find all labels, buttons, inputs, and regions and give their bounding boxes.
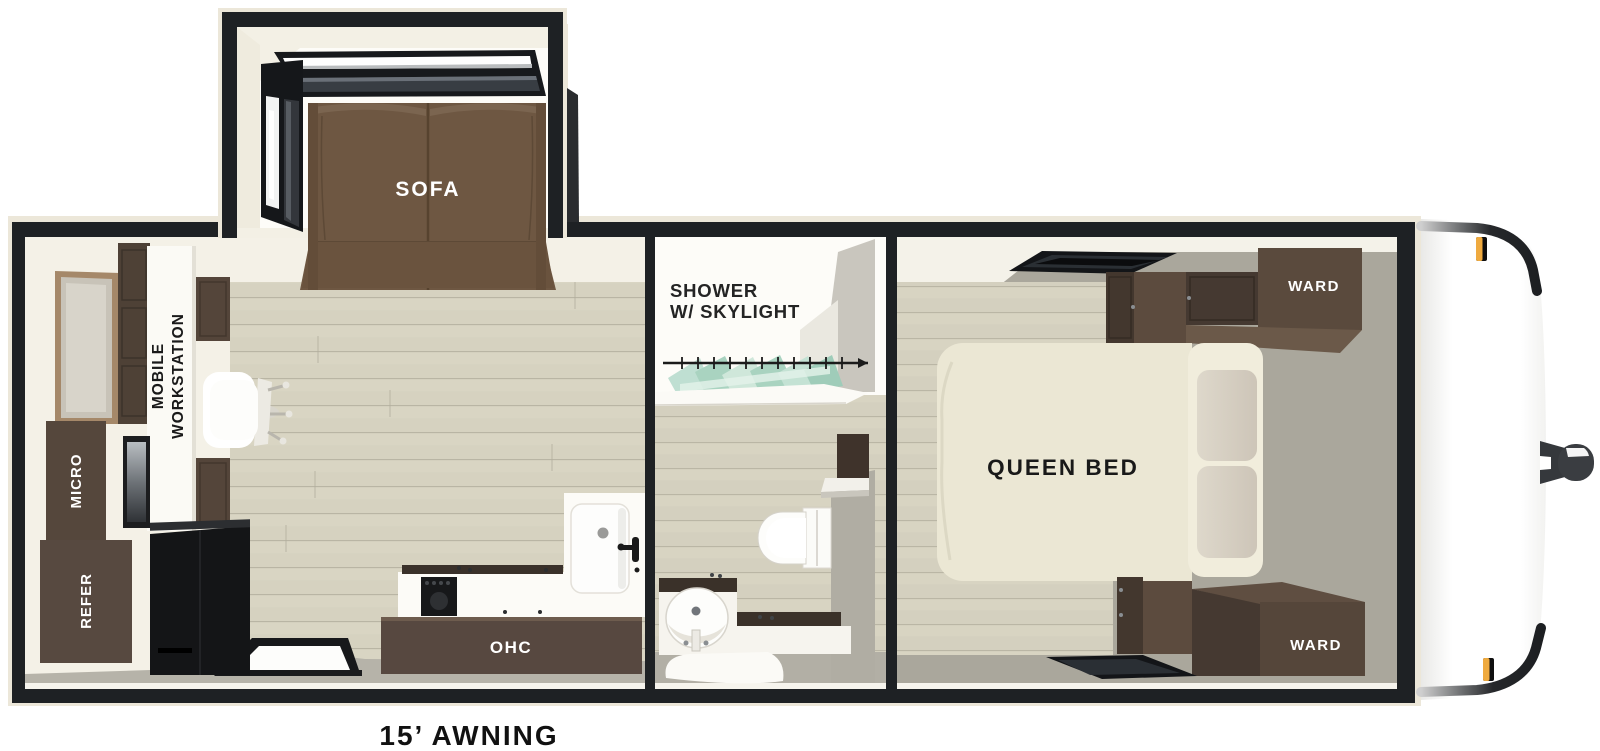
svg-text:SHOWER: SHOWER [670,280,758,301]
svg-text:REFER: REFER [78,573,95,629]
svg-text:OHC: OHC [490,638,532,657]
svg-text:WARD: WARD [1290,637,1342,654]
svg-text:MOBILE: MOBILE [150,343,167,409]
svg-text:SOFA: SOFA [395,178,460,201]
svg-text:QUEEN BED: QUEEN BED [987,455,1139,480]
svg-text:W/ SKYLIGHT: W/ SKYLIGHT [670,301,800,322]
svg-text:WARD: WARD [1288,278,1340,295]
svg-text:15’ AWNING: 15’ AWNING [379,720,558,751]
svg-text:WORKSTATION: WORKSTATION [170,313,187,439]
svg-text:MICRO: MICRO [68,454,85,509]
